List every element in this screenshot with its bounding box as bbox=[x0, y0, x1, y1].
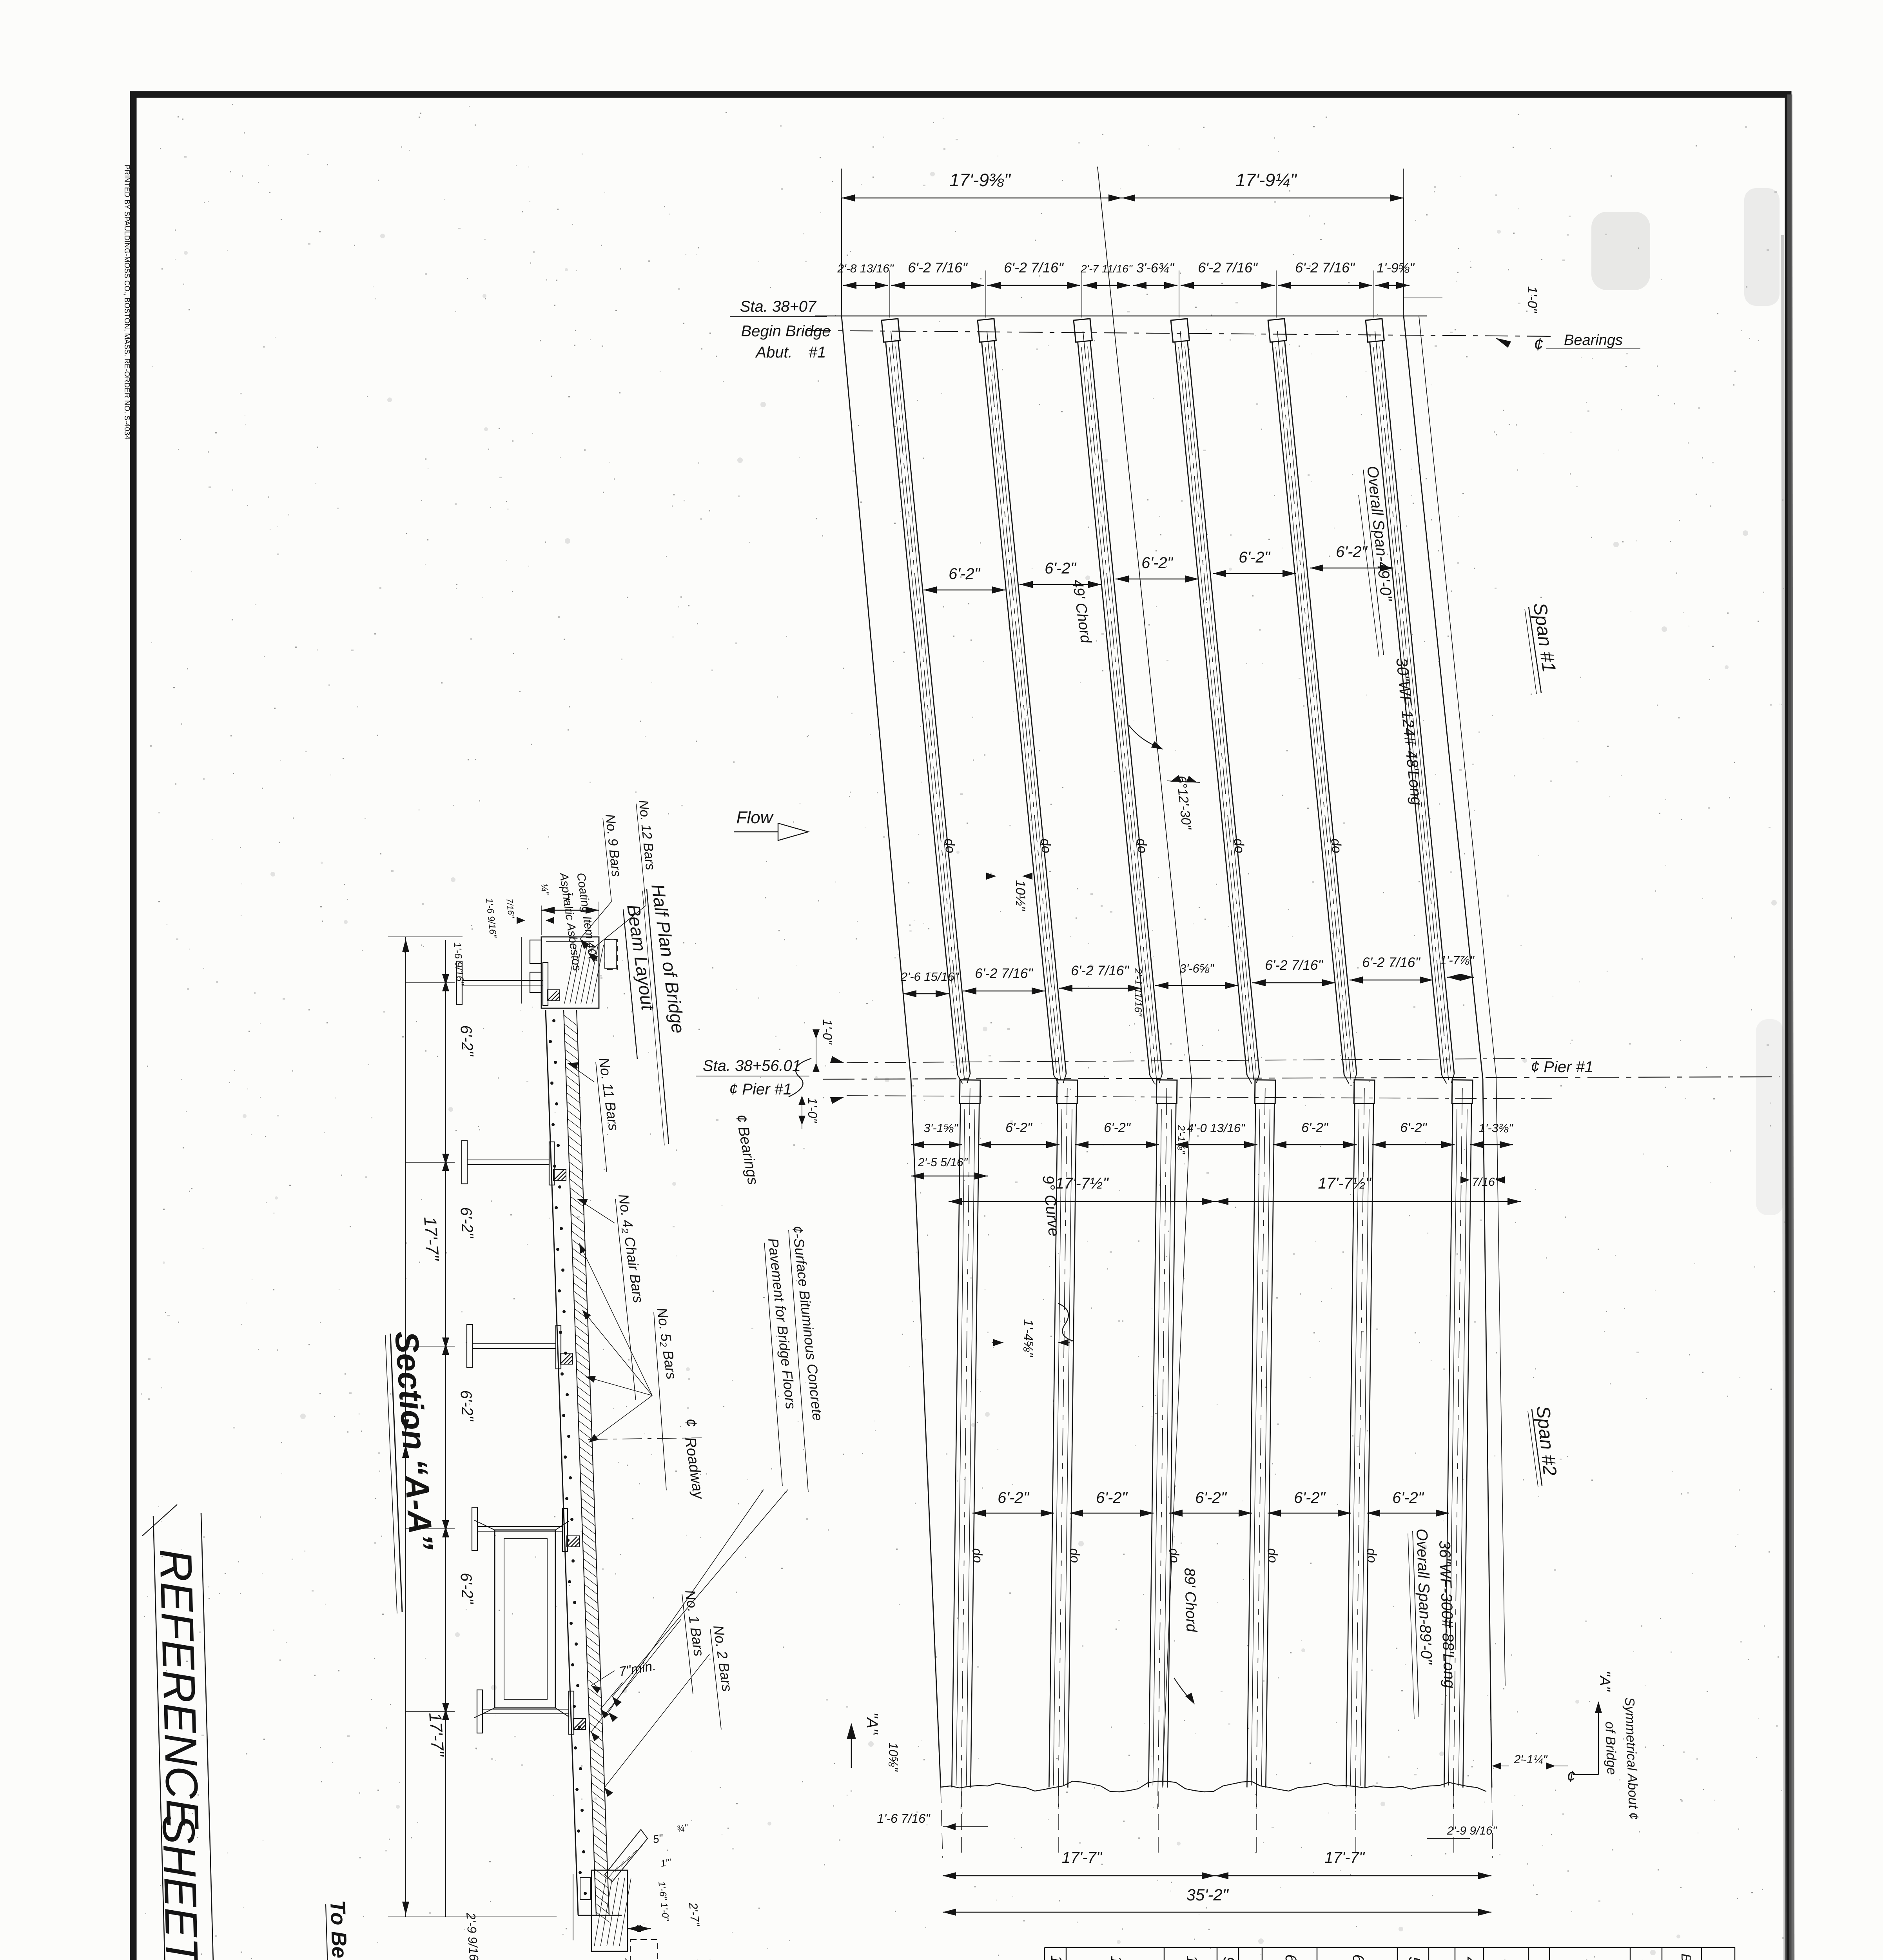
svg-text:6P: 6P bbox=[1282, 1955, 1299, 1960]
svg-text:17'-9¼": 17'-9¼" bbox=[1235, 170, 1297, 190]
svg-text:Sta. 38+07: Sta. 38+07 bbox=[740, 298, 817, 315]
svg-text:3'-6¾": 3'-6¾" bbox=[1136, 261, 1175, 276]
svg-text:1'-4⅝": 1'-4⅝" bbox=[1021, 1319, 1036, 1357]
svg-text:2'-6 15/16": 2'-6 15/16" bbox=[900, 970, 960, 984]
svg-text:1'-0": 1'-0" bbox=[820, 1019, 834, 1045]
svg-text:2'-5 5/16": 2'-5 5/16" bbox=[918, 1156, 968, 1169]
svg-text:Flow: Flow bbox=[737, 808, 774, 827]
svg-text:4'-0 13/16": 4'-0 13/16" bbox=[1187, 1121, 1246, 1135]
svg-text:2'-1⅞": 2'-1⅞" bbox=[1176, 1125, 1187, 1154]
svg-text:7/16": 7/16" bbox=[1472, 1176, 1499, 1189]
svg-text:3'-1⅝": 3'-1⅝" bbox=[923, 1121, 959, 1135]
svg-text:6'-2": 6'-2" bbox=[949, 565, 980, 583]
svg-text:Bearings: Bearings bbox=[1564, 332, 1623, 348]
svg-text:12: 12 bbox=[1048, 1955, 1065, 1960]
svg-text:6'-2 7/16": 6'-2 7/16" bbox=[1362, 955, 1420, 970]
svg-text:"A": "A" bbox=[1596, 1671, 1613, 1692]
svg-text:do: do bbox=[1067, 1548, 1083, 1563]
svg-text:Sta. 38+56.01: Sta. 38+56.01 bbox=[703, 1057, 801, 1074]
svg-text:6'-2": 6'-2" bbox=[457, 1572, 477, 1605]
svg-text:2'-1 11/16": 2'-1 11/16" bbox=[1132, 968, 1144, 1017]
svg-text:17'-7": 17'-7" bbox=[1062, 1849, 1103, 1866]
svg-text:do: do bbox=[1038, 838, 1054, 854]
svg-text:2'-7": 2'-7" bbox=[686, 1902, 702, 1927]
svg-text:6'-2": 6'-2" bbox=[1005, 1120, 1033, 1135]
svg-text:10½": 10½" bbox=[1013, 880, 1028, 911]
svg-text:do: do bbox=[941, 838, 958, 854]
svg-text:do: do bbox=[969, 1548, 985, 1563]
svg-text:1'-6 7/16": 1'-6 7/16" bbox=[877, 1811, 931, 1826]
svg-text:¢: ¢ bbox=[1534, 335, 1543, 354]
svg-text:3'-6⅝": 3'-6⅝" bbox=[1179, 962, 1215, 975]
svg-text:of Bridge: of Bridge bbox=[1602, 1721, 1619, 1775]
svg-text:Bar: Bar bbox=[1678, 1954, 1693, 1960]
svg-text:6'-2": 6'-2" bbox=[457, 1207, 477, 1240]
svg-text:¢ Pier #1: ¢ Pier #1 bbox=[1531, 1058, 1593, 1076]
svg-text:6'-2": 6'-2" bbox=[1400, 1120, 1428, 1135]
svg-text:6'-2": 6'-2" bbox=[457, 1390, 477, 1423]
svg-text:35'-2": 35'-2" bbox=[1186, 1886, 1229, 1904]
svg-text:17'-7": 17'-7" bbox=[1324, 1849, 1365, 1866]
svg-text:6'-2": 6'-2" bbox=[1096, 1489, 1128, 1506]
svg-text:9₂: 9₂ bbox=[1220, 1956, 1237, 1960]
svg-text:do: do bbox=[1134, 838, 1150, 854]
svg-text:6'-2": 6'-2" bbox=[1045, 560, 1076, 577]
svg-text:#1: #1 bbox=[809, 344, 826, 361]
svg-text:10⅝": 10⅝" bbox=[886, 1742, 900, 1772]
svg-text:1'-0": 1'-0" bbox=[1525, 286, 1540, 314]
svg-text:6'-2 7/16": 6'-2 7/16" bbox=[1198, 260, 1258, 276]
svg-text:REFERENCE: REFERENCE bbox=[150, 1548, 209, 1830]
svg-text:"A": "A" bbox=[863, 1712, 881, 1735]
svg-text:5₂: 5₂ bbox=[1406, 1956, 1423, 1960]
svg-text:4₂: 4₂ bbox=[1462, 1956, 1479, 1960]
svg-text:¢: ¢ bbox=[1567, 1768, 1575, 1785]
svg-text:6'-2 7/16": 6'-2 7/16" bbox=[908, 260, 968, 276]
svg-text:6'-2": 6'-2" bbox=[1294, 1489, 1326, 1506]
svg-text:SHEET: SHEET bbox=[153, 1813, 208, 1960]
svg-text:2'-9 9/16": 2'-9 9/16" bbox=[1447, 1824, 1497, 1837]
svg-text:2'-1¼": 2'-1¼" bbox=[1514, 1753, 1548, 1766]
svg-text:17'-7½": 17'-7½" bbox=[1318, 1175, 1371, 1192]
svg-text:2'-8 13/16": 2'-8 13/16" bbox=[837, 262, 894, 275]
svg-text:do: do bbox=[1231, 838, 1247, 854]
svg-text:6'-2": 6'-2" bbox=[1141, 554, 1173, 572]
svg-text:6'-2": 6'-2" bbox=[1195, 1489, 1227, 1506]
svg-text:6'-2": 6'-2" bbox=[998, 1489, 1029, 1506]
svg-text:do: do bbox=[1264, 1548, 1281, 1563]
svg-text:89' Chord: 89' Chord bbox=[1181, 1568, 1200, 1633]
svg-text:10: 10 bbox=[1183, 1955, 1201, 1960]
svg-text:6'-2 7/16": 6'-2 7/16" bbox=[1004, 260, 1064, 276]
svg-text:6'-2": 6'-2" bbox=[457, 1025, 477, 1058]
svg-text:6'-2": 6'-2" bbox=[1301, 1120, 1329, 1135]
svg-text:¢ Pier #1: ¢ Pier #1 bbox=[729, 1081, 792, 1098]
svg-text:6'-2": 6'-2" bbox=[1104, 1120, 1131, 1135]
svg-text:Begin Bridge: Begin Bridge bbox=[741, 323, 831, 340]
svg-text:11: 11 bbox=[1108, 1956, 1125, 1960]
svg-text:do: do bbox=[1364, 1548, 1380, 1563]
svg-text:¼": ¼" bbox=[539, 883, 551, 896]
svg-text:17'-9⅜": 17'-9⅜" bbox=[949, 170, 1011, 190]
svg-text:6A: 6A bbox=[1350, 1955, 1367, 1960]
svg-text:do: do bbox=[1328, 838, 1344, 854]
svg-text:1'-3⅜": 1'-3⅜" bbox=[1478, 1121, 1514, 1135]
svg-text:17'-7": 17'-7" bbox=[420, 1216, 443, 1262]
svg-text:6'-2 7/16": 6'-2 7/16" bbox=[975, 966, 1033, 981]
svg-text:6'-2 7/16": 6'-2 7/16" bbox=[1071, 963, 1129, 978]
svg-text:2'-7 11/16": 2'-7 11/16" bbox=[1080, 263, 1133, 275]
svg-text:6'-2 7/16": 6'-2 7/16" bbox=[1295, 260, 1355, 276]
svg-text:1'-0": 1'-0" bbox=[805, 1098, 820, 1123]
svg-text:6'-2": 6'-2" bbox=[1239, 549, 1270, 566]
svg-text:17'-7½": 17'-7½" bbox=[1055, 1175, 1109, 1192]
svg-text:PRINTED BY SPAULDING-MOSS CO.,: PRINTED BY SPAULDING-MOSS CO., BOSTON, M… bbox=[123, 165, 131, 439]
svg-text:do: do bbox=[1166, 1548, 1182, 1563]
svg-text:6'-2": 6'-2" bbox=[1336, 543, 1368, 561]
svg-text:1'-7⅞": 1'-7⅞" bbox=[1440, 953, 1475, 967]
svg-text:Abut.: Abut. bbox=[755, 344, 792, 361]
svg-text:6'-2": 6'-2" bbox=[1392, 1489, 1424, 1506]
svg-text:6'-2 7/16": 6'-2 7/16" bbox=[1265, 958, 1323, 973]
svg-text:1'-9⅝": 1'-9⅝" bbox=[1377, 261, 1415, 276]
